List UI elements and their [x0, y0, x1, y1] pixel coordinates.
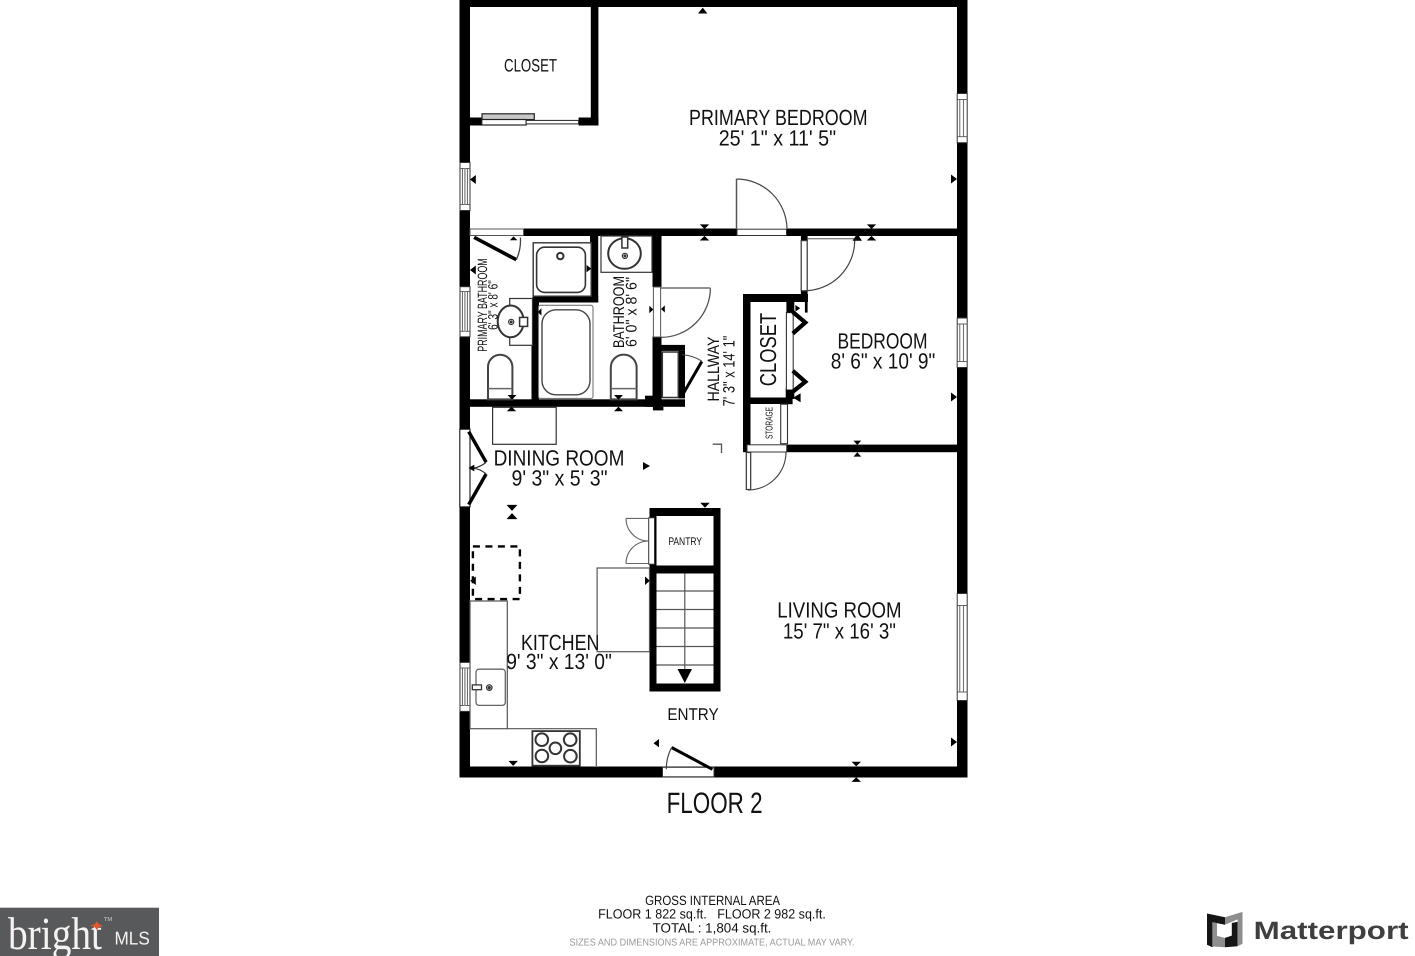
svg-text:15' 7" x 16' 3": 15' 7" x 16' 3": [783, 618, 896, 643]
svg-text:Matterport: Matterport: [1254, 917, 1410, 945]
svg-text:TM: TM: [104, 917, 113, 923]
svg-text:TOTAL : 1,804 sq.ft.: TOTAL : 1,804 sq.ft.: [653, 921, 772, 936]
svg-text:MLS: MLS: [115, 927, 150, 948]
svg-text:9' 3" x 13' 0": 9' 3" x 13' 0": [506, 649, 612, 674]
svg-text:CLOSET: CLOSET: [755, 313, 781, 387]
svg-text:STORAGE: STORAGE: [764, 407, 775, 439]
svg-text:PANTRY: PANTRY: [668, 536, 702, 548]
svg-text:ENTRY: ENTRY: [667, 705, 718, 724]
svg-text:bright: bright: [8, 908, 102, 956]
svg-text:SIZES AND DIMENSIONS ARE APPRO: SIZES AND DIMENSIONS ARE APPROXIMATE, AC…: [570, 938, 855, 949]
svg-text:25' 1" x 11' 5": 25' 1" x 11' 5": [719, 125, 836, 150]
svg-text:8' 6" x 10' 9": 8' 6" x 10' 9": [831, 349, 936, 374]
svg-text:FLOOR 2: FLOOR 2: [667, 787, 763, 820]
svg-text:FLOOR 1 822 sq.ft. FLOOR 2 9: FLOOR 1 822 sq.ft. FLOOR 2 982 sq.ft.: [598, 907, 826, 922]
svg-text:7' 3" x 14' 1": 7' 3" x 14' 1": [721, 336, 739, 407]
svg-text:CLOSET: CLOSET: [504, 56, 557, 76]
svg-text:GROSS INTERNAL AREA: GROSS INTERNAL AREA: [645, 893, 780, 908]
svg-text:9' 3" x 5' 3": 9' 3" x 5' 3": [512, 465, 608, 490]
svg-text:6' 0" x 8' 6": 6' 0" x 8' 6": [623, 277, 640, 347]
svg-text:6' 3" x 8' 6": 6' 3" x 8' 6": [486, 280, 501, 330]
